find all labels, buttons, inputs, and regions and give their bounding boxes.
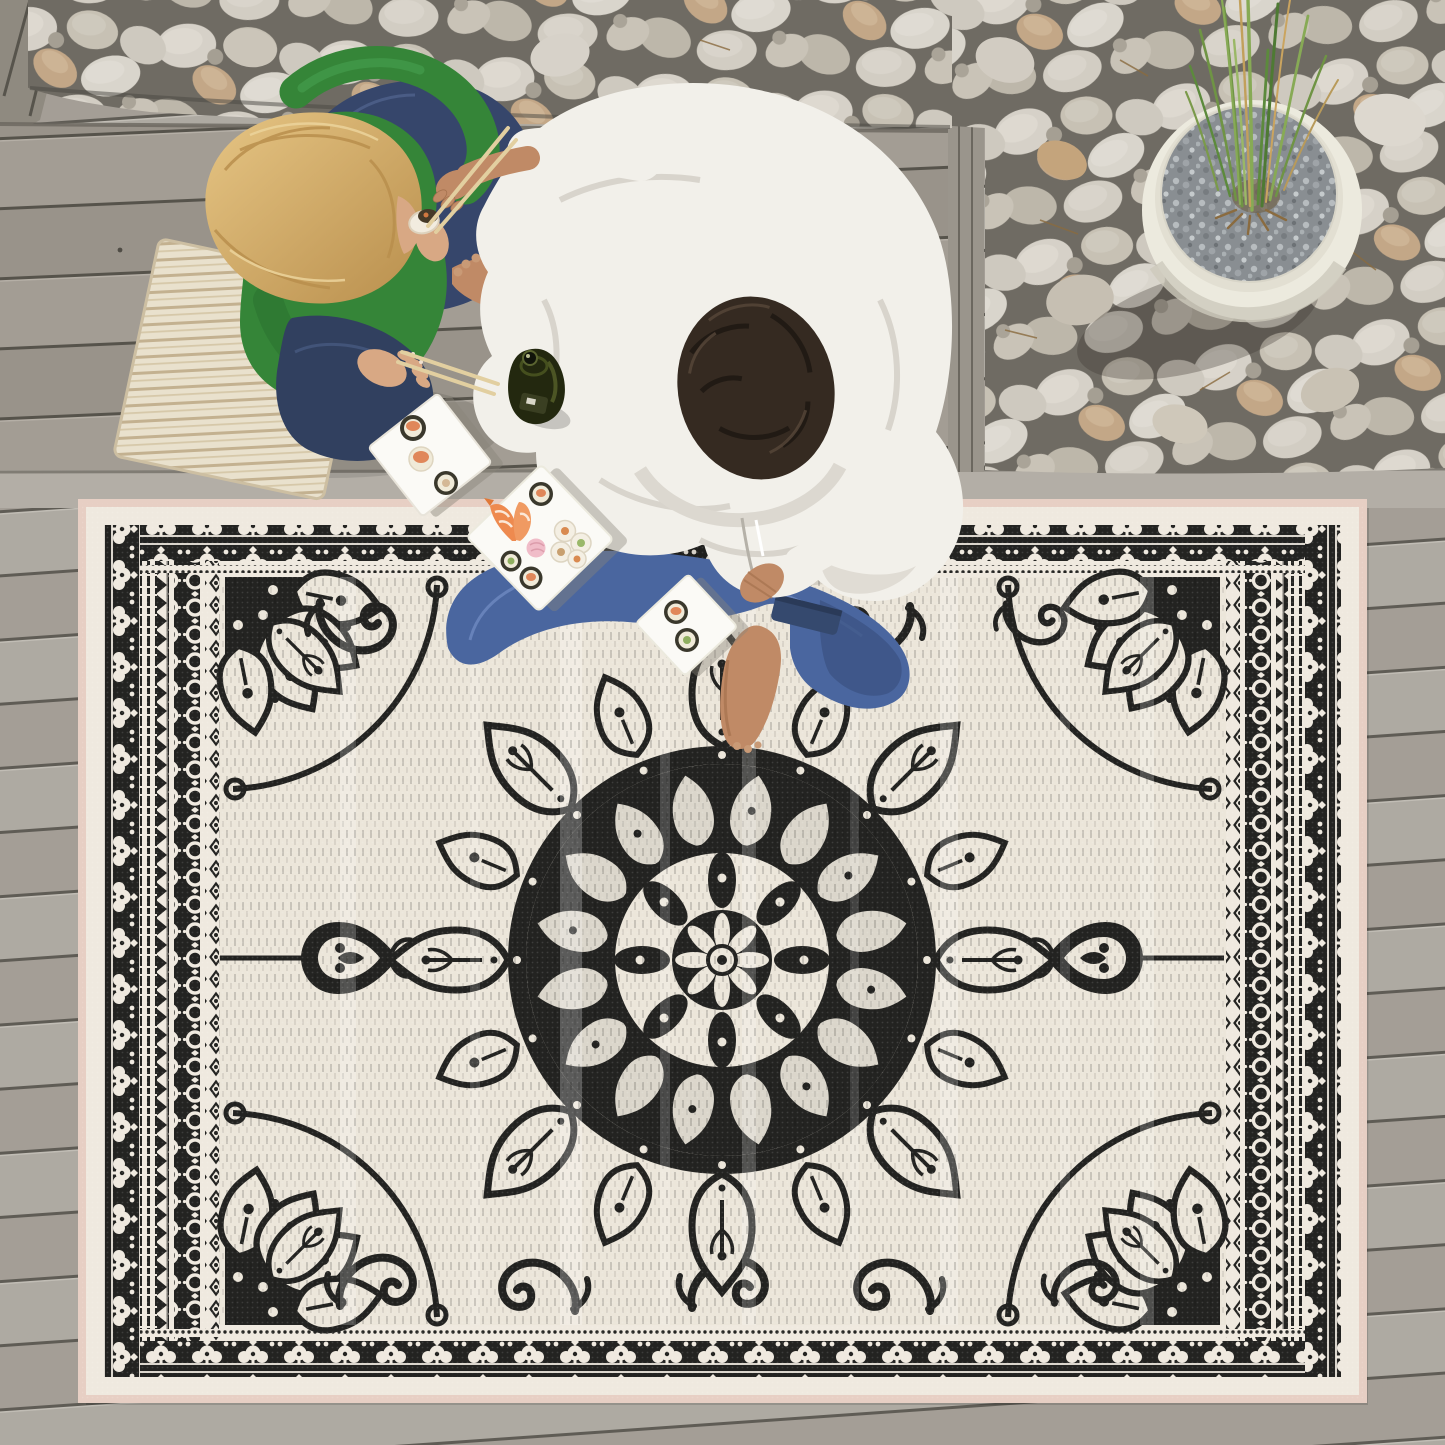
deck-side-board — [948, 126, 984, 472]
pickled-ginger — [527, 539, 546, 558]
scene-svg — [0, 0, 1445, 1445]
photo-canvas — [0, 0, 1445, 1445]
bottle-cap — [523, 351, 537, 365]
